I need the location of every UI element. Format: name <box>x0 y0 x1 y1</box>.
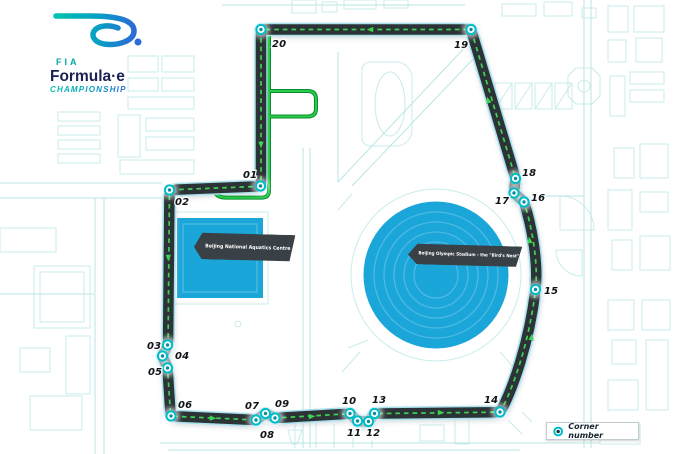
corner-label-01: 01 <box>243 170 257 181</box>
corner-label-13: 13 <box>372 395 386 406</box>
corner-marker-01 <box>256 181 265 190</box>
map-octagon-fans <box>556 68 600 276</box>
logo-formula-e-text: Formula·e <box>50 68 125 85</box>
corner-label-05: 05 <box>148 367 162 378</box>
corner-number-icon <box>553 426 563 437</box>
corner-label-11: 11 <box>347 428 361 439</box>
map-blocks-left <box>0 228 90 430</box>
logo-fia-text: FIA <box>56 57 80 67</box>
corner-label-20: 20 <box>272 39 286 50</box>
corner-marker-02 <box>165 185 174 194</box>
corner-label-06: 06 <box>178 400 192 411</box>
corner-marker-16 <box>519 197 528 206</box>
olympic-stadium-label: Beijing Olympic Stadium - the "Bird's Ne… <box>418 251 519 259</box>
corner-marker-19 <box>466 25 475 34</box>
logo-championship-text: CHAMPIONSHIP <box>50 85 127 94</box>
corner-number-legend-label: Corner number <box>568 422 632 440</box>
corner-marker-17 <box>509 188 518 197</box>
olympic-stadium-building <box>364 202 509 349</box>
aquatics-centre-label: Beijing National Aquatics Centre <box>205 243 290 252</box>
venue-fills <box>177 202 509 349</box>
formula-e-logo: FIA Formula·e CHAMPIONSHIP <box>46 8 168 96</box>
corner-label-08: 08 <box>260 430 274 441</box>
corner-marker-05 <box>163 363 172 372</box>
corner-label-09: 09 <box>275 399 289 410</box>
corner-marker-10 <box>345 409 354 418</box>
corner-marker-08 <box>261 409 270 418</box>
map-blocks-right <box>600 6 670 444</box>
corner-label-12: 12 <box>366 428 380 439</box>
corner-marker-04 <box>158 351 167 360</box>
corner-marker-11 <box>353 416 362 425</box>
corner-label-07: 07 <box>245 401 259 412</box>
corner-label-14: 14 <box>484 395 498 406</box>
corner-marker-20 <box>256 25 265 34</box>
formula-e-emblem <box>56 16 142 46</box>
corner-marker-15 <box>531 285 540 294</box>
corner-marker-09 <box>270 413 279 422</box>
corner-marker-13 <box>370 409 379 418</box>
corner-marker-18 <box>511 174 520 183</box>
corner-label-17: 17 <box>495 196 509 207</box>
corner-label-15: 15 <box>544 286 558 297</box>
corner-label-02: 02 <box>175 197 189 208</box>
corner-marker-06 <box>166 411 175 420</box>
olympic-stadium-banner: Beijing Olympic Stadium - the "Bird's Ne… <box>408 243 523 268</box>
corner-label-19: 19 <box>454 40 468 51</box>
corner-label-04: 04 <box>175 351 189 362</box>
corner-label-03: 03 <box>147 341 161 352</box>
corner-label-16: 16 <box>531 193 545 204</box>
map-dot <box>235 321 241 327</box>
corner-number-legend: Corner number <box>546 422 639 440</box>
circuit-map-stage: 0102030405060708091011121314151617181920… <box>0 0 680 454</box>
corner-label-10: 10 <box>342 396 356 407</box>
map-blocks-topcenter <box>292 0 596 18</box>
corner-label-18: 18 <box>522 168 536 179</box>
map-parking-squares <box>495 83 572 109</box>
corner-marker-14 <box>495 407 504 416</box>
aquatics-centre-banner: Beijing National Aquatics Centre <box>194 232 296 262</box>
corner-marker-03 <box>163 340 172 349</box>
corner-marker-07 <box>251 415 260 424</box>
